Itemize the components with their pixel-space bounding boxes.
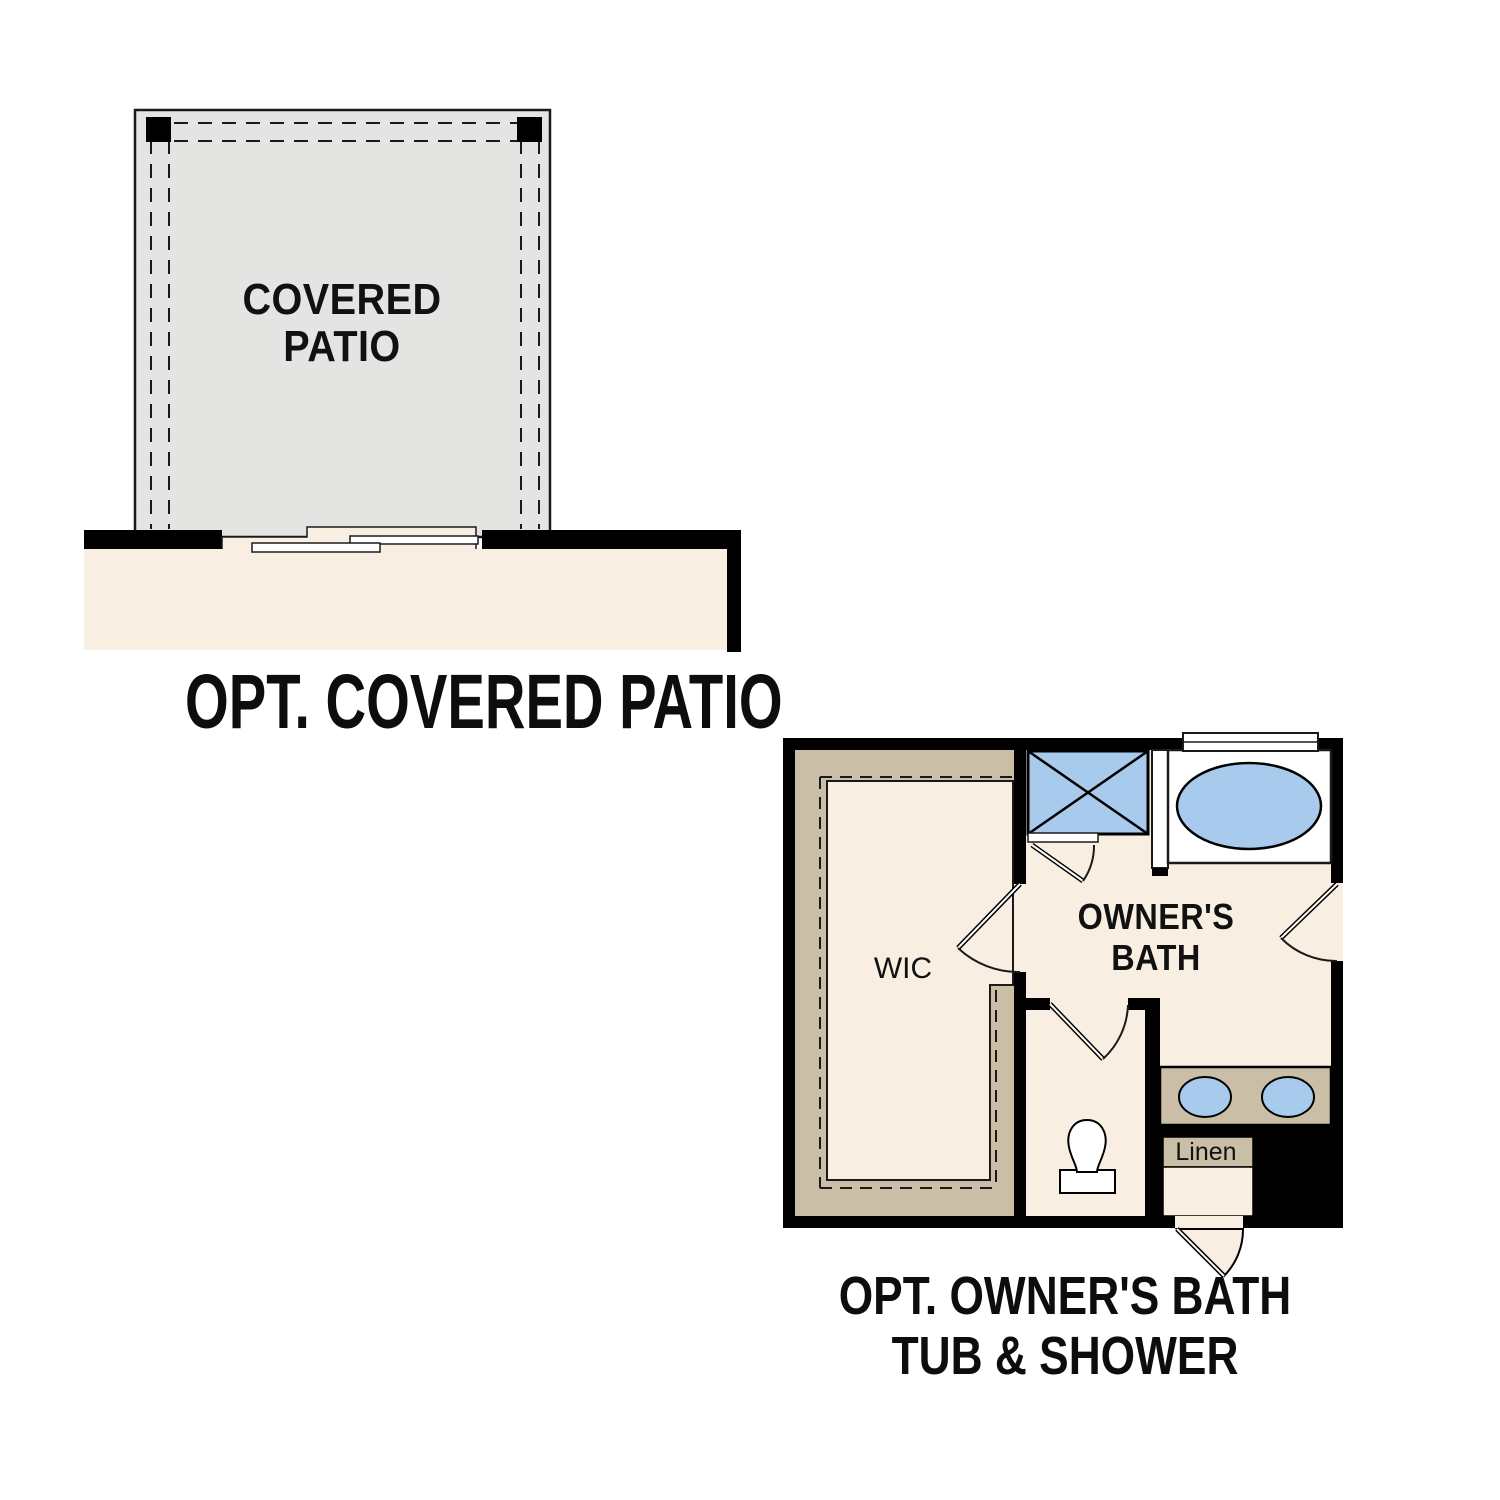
covered-patio-plan (84, 110, 741, 652)
wic-label: WIC (843, 953, 963, 985)
bath-caption-line1: OPT. OWNER'S BATH (819, 1266, 1311, 1326)
linen-doorway (1175, 1216, 1243, 1230)
sink-icon (1179, 1077, 1231, 1117)
shower-icon (1028, 751, 1148, 842)
patio-post-icon (517, 117, 542, 142)
patio-room-label-line2: PATIO (185, 323, 500, 370)
shower-tub-partition (1152, 750, 1168, 876)
patio-room-label: COVERED PATIO (185, 276, 500, 370)
tub-icon (1168, 750, 1331, 863)
patio-caption: OPT. COVERED PATIO (185, 662, 623, 742)
owners-bath-room-label: OWNER'S BATH (1044, 896, 1269, 978)
window-icon (1183, 733, 1318, 751)
floorplan-options-sheet: COVERED PATIO OPT. COVERED PATIO WIC OWN… (0, 0, 1500, 1500)
bath-caption-line2: TUB & SHOWER (819, 1326, 1311, 1386)
linen-floor (1163, 1167, 1253, 1216)
sink-icon (1262, 1077, 1314, 1117)
patio-post-icon (146, 117, 171, 142)
vanity-icon (1160, 1067, 1331, 1125)
bath-caption: OPT. OWNER'S BATH TUB & SHOWER (819, 1266, 1311, 1386)
patio-room-label-line1: COVERED (185, 276, 500, 323)
linen-label: Linen (1146, 1138, 1266, 1166)
owners-bath-label-line2: BATH (1044, 937, 1269, 978)
house-interior-floor (84, 549, 727, 650)
owners-bath-plan (783, 733, 1343, 1276)
shower-sill (1028, 833, 1098, 842)
wic-dividing-wall (1014, 750, 1026, 1216)
owners-bath-label-line1: OWNER'S (1044, 896, 1269, 937)
